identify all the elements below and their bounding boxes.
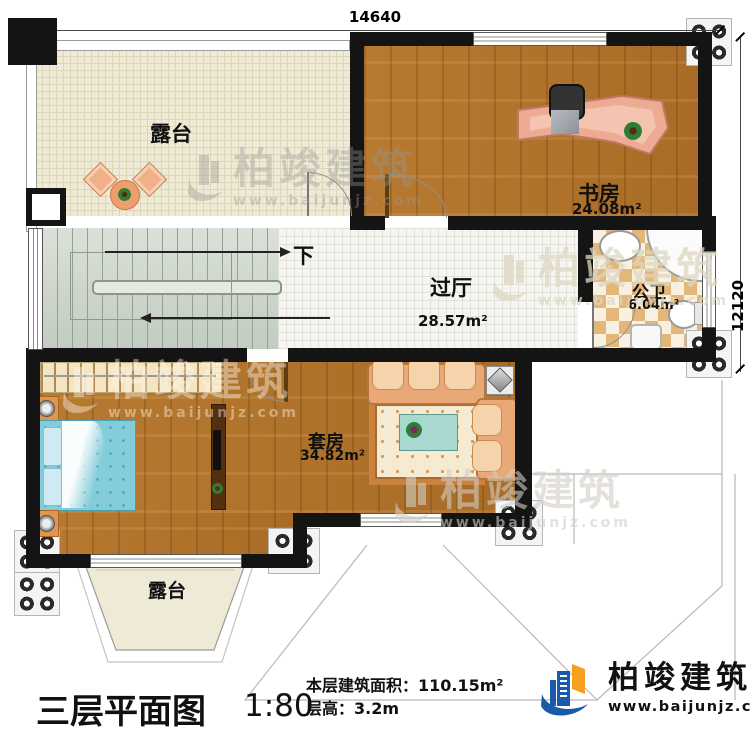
plant-icon xyxy=(624,122,642,140)
terrace-top-label: 露台 xyxy=(150,118,192,148)
pillow xyxy=(43,427,62,466)
wall xyxy=(288,348,593,362)
wardrobe xyxy=(40,362,222,393)
wall xyxy=(702,230,716,252)
wall xyxy=(350,32,364,230)
left-arrow-icon xyxy=(140,313,151,323)
pillow xyxy=(43,468,62,506)
floor-height-label: 层高： xyxy=(306,699,354,718)
bathroom-window xyxy=(702,252,716,328)
floor-area-value: 110.15m² xyxy=(418,676,503,695)
study-desk xyxy=(510,84,680,168)
stairwell-window xyxy=(28,228,43,350)
nightstand-lamp-icon xyxy=(38,515,55,532)
suite-window xyxy=(360,513,442,527)
floor-height-line: 层高：3.2m xyxy=(306,697,503,720)
porch-column xyxy=(14,572,60,616)
wall xyxy=(350,32,473,46)
flower-icon xyxy=(406,422,422,438)
wall xyxy=(440,513,532,527)
sofa-cushion xyxy=(408,358,440,390)
sofa-cushion xyxy=(472,404,502,436)
terrace-planter xyxy=(26,188,66,226)
bathroom-sink xyxy=(599,230,641,262)
wall xyxy=(578,348,716,362)
terrace-top-railing xyxy=(26,40,350,51)
dimension-line-top xyxy=(30,30,722,31)
wall xyxy=(350,216,385,230)
tv-icon xyxy=(213,430,221,470)
floor-plan: 14640 12120 露台 书房 24.08 xyxy=(0,0,750,732)
stairs-down-label: 下 xyxy=(293,240,314,270)
wall xyxy=(240,554,307,568)
logo-url: www.baijunjz.com xyxy=(608,699,750,715)
down-arrow-icon xyxy=(280,247,291,257)
nightstand-lamp-icon xyxy=(38,400,55,417)
study-window xyxy=(473,32,607,46)
plant-icon xyxy=(212,483,223,494)
plan-scale: 1:80 xyxy=(244,688,314,724)
hallway-label: 过厅 xyxy=(430,272,472,302)
logo: 柏竣建筑 www.baijunjz.com xyxy=(536,658,750,720)
plant-icon xyxy=(118,188,131,201)
wall xyxy=(578,230,593,302)
sofa-cushion xyxy=(472,440,502,472)
bed-sheet xyxy=(62,421,106,508)
floor-area-line: 本层建筑面积：110.15m² xyxy=(306,674,503,697)
desk-keyboard-pad xyxy=(551,110,579,134)
logo-brand: 柏竣建筑 xyxy=(608,663,750,694)
study-area: 24.08m² xyxy=(572,200,642,218)
logo-icon xyxy=(536,658,598,720)
plan-title: 三层平面图 xyxy=(36,684,206,732)
wall xyxy=(515,362,532,513)
hallway-area: 28.57m² xyxy=(418,312,488,330)
wall xyxy=(26,554,90,568)
sofa-cushion xyxy=(372,358,404,390)
suite-area: 34.82m² xyxy=(300,448,365,464)
stair-leader-line xyxy=(105,251,283,253)
wardrobe-rod xyxy=(44,375,216,377)
floor-height-value: 3.2m xyxy=(354,699,399,718)
plan-info: 本层建筑面积：110.15m² 层高：3.2m xyxy=(306,674,503,720)
wall xyxy=(448,216,716,230)
terrace-bottom-label: 露台 xyxy=(148,576,186,603)
wall xyxy=(307,513,360,527)
stair-direction-line xyxy=(150,317,330,319)
wall xyxy=(26,348,247,362)
wall xyxy=(698,32,712,230)
water-tank xyxy=(630,324,662,350)
bay-window xyxy=(90,554,242,568)
wall xyxy=(605,32,712,46)
dimension-right-label: 12120 xyxy=(729,280,747,332)
wall xyxy=(26,348,40,568)
bathroom-area: 6.04m² xyxy=(628,298,679,313)
floor-area-label: 本层建筑面积： xyxy=(306,676,418,695)
dimension-top-label: 14640 xyxy=(0,8,750,26)
stair-guide xyxy=(70,252,232,320)
sofa-cushion xyxy=(444,358,476,390)
